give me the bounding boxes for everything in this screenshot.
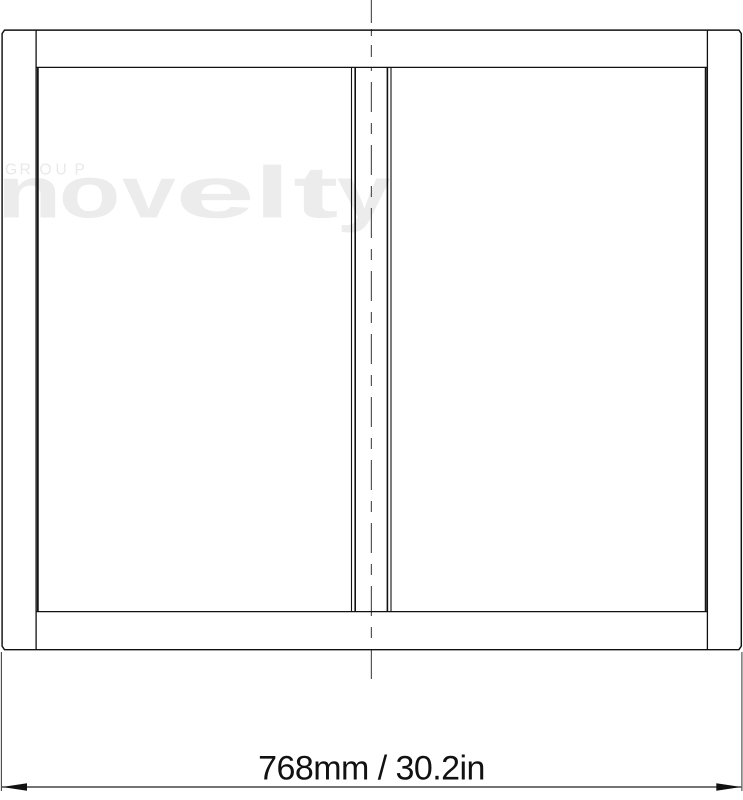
svg-text:768mm / 30.2in: 768mm / 30.2in — [258, 750, 485, 788]
svg-text:y: y — [337, 152, 391, 233]
svg-text:o: o — [59, 151, 121, 233]
svg-text:n: n — [0, 152, 62, 234]
svg-text:v: v — [122, 152, 176, 234]
svg-text:t: t — [293, 152, 338, 234]
svg-text:e: e — [175, 152, 255, 233]
svg-text:l: l — [254, 152, 291, 234]
